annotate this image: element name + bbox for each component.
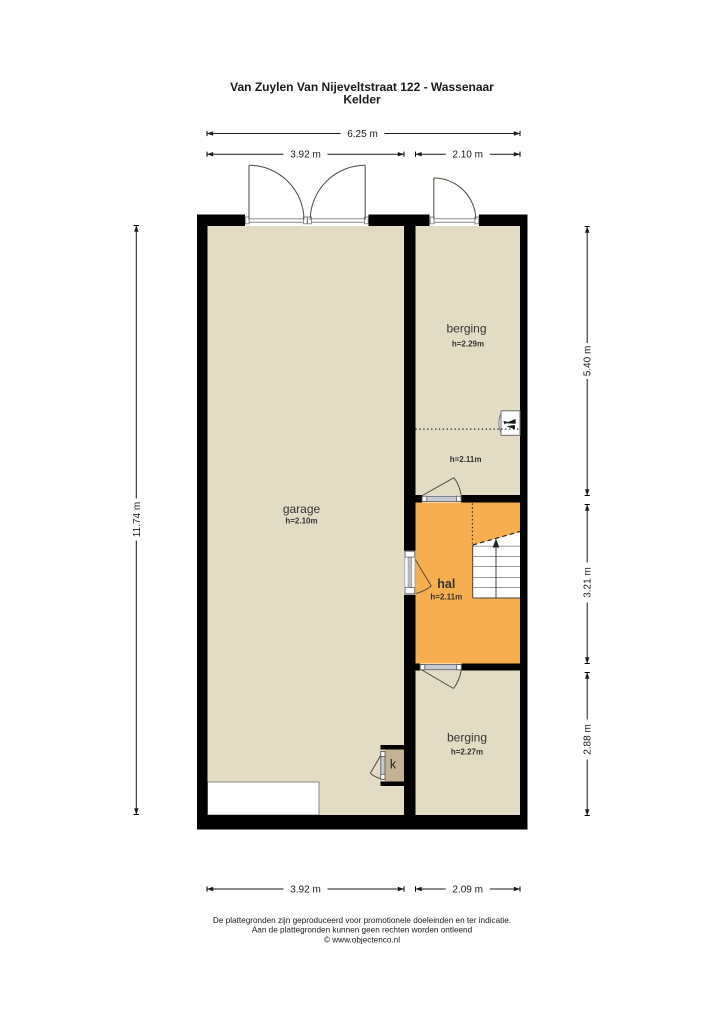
svg-text:2.09 m: 2.09 m [452, 885, 483, 896]
svg-text:h=2.11m: h=2.11m [450, 455, 482, 464]
svg-text:11.74 m: 11.74 m [132, 502, 143, 537]
svg-text:Kelder: Kelder [343, 93, 381, 107]
svg-text:De plattegronden zijn geproduc: De plattegronden zijn geproduceerd voor … [213, 916, 511, 925]
svg-text:h=2.10m: h=2.10m [285, 517, 317, 526]
svg-text:5.40 m: 5.40 m [583, 346, 594, 377]
svg-text:h=2.29m: h=2.29m [452, 340, 484, 349]
svg-text:h=2.27m: h=2.27m [451, 748, 483, 757]
svg-text:hal: hal [437, 577, 455, 591]
svg-text:6.25 m: 6.25 m [347, 129, 378, 140]
svg-text:garage: garage [283, 502, 321, 516]
svg-text:k: k [390, 758, 397, 772]
svg-text:© www.objectenco.nl: © www.objectenco.nl [324, 935, 400, 944]
svg-text:h=2.11m: h=2.11m [430, 593, 462, 602]
svg-text:Aan de plattegronden kunnen ge: Aan de plattegronden kunnen geen rechten… [252, 926, 473, 935]
svg-text:3.21 m: 3.21 m [583, 567, 594, 598]
svg-text:berging: berging [446, 322, 486, 336]
svg-text:3.92 m: 3.92 m [290, 885, 321, 896]
svg-text:2.88 m: 2.88 m [583, 724, 594, 755]
svg-text:2.10 m: 2.10 m [452, 149, 483, 160]
svg-text:3.92 m: 3.92 m [290, 149, 321, 160]
svg-text:berging: berging [447, 731, 487, 745]
